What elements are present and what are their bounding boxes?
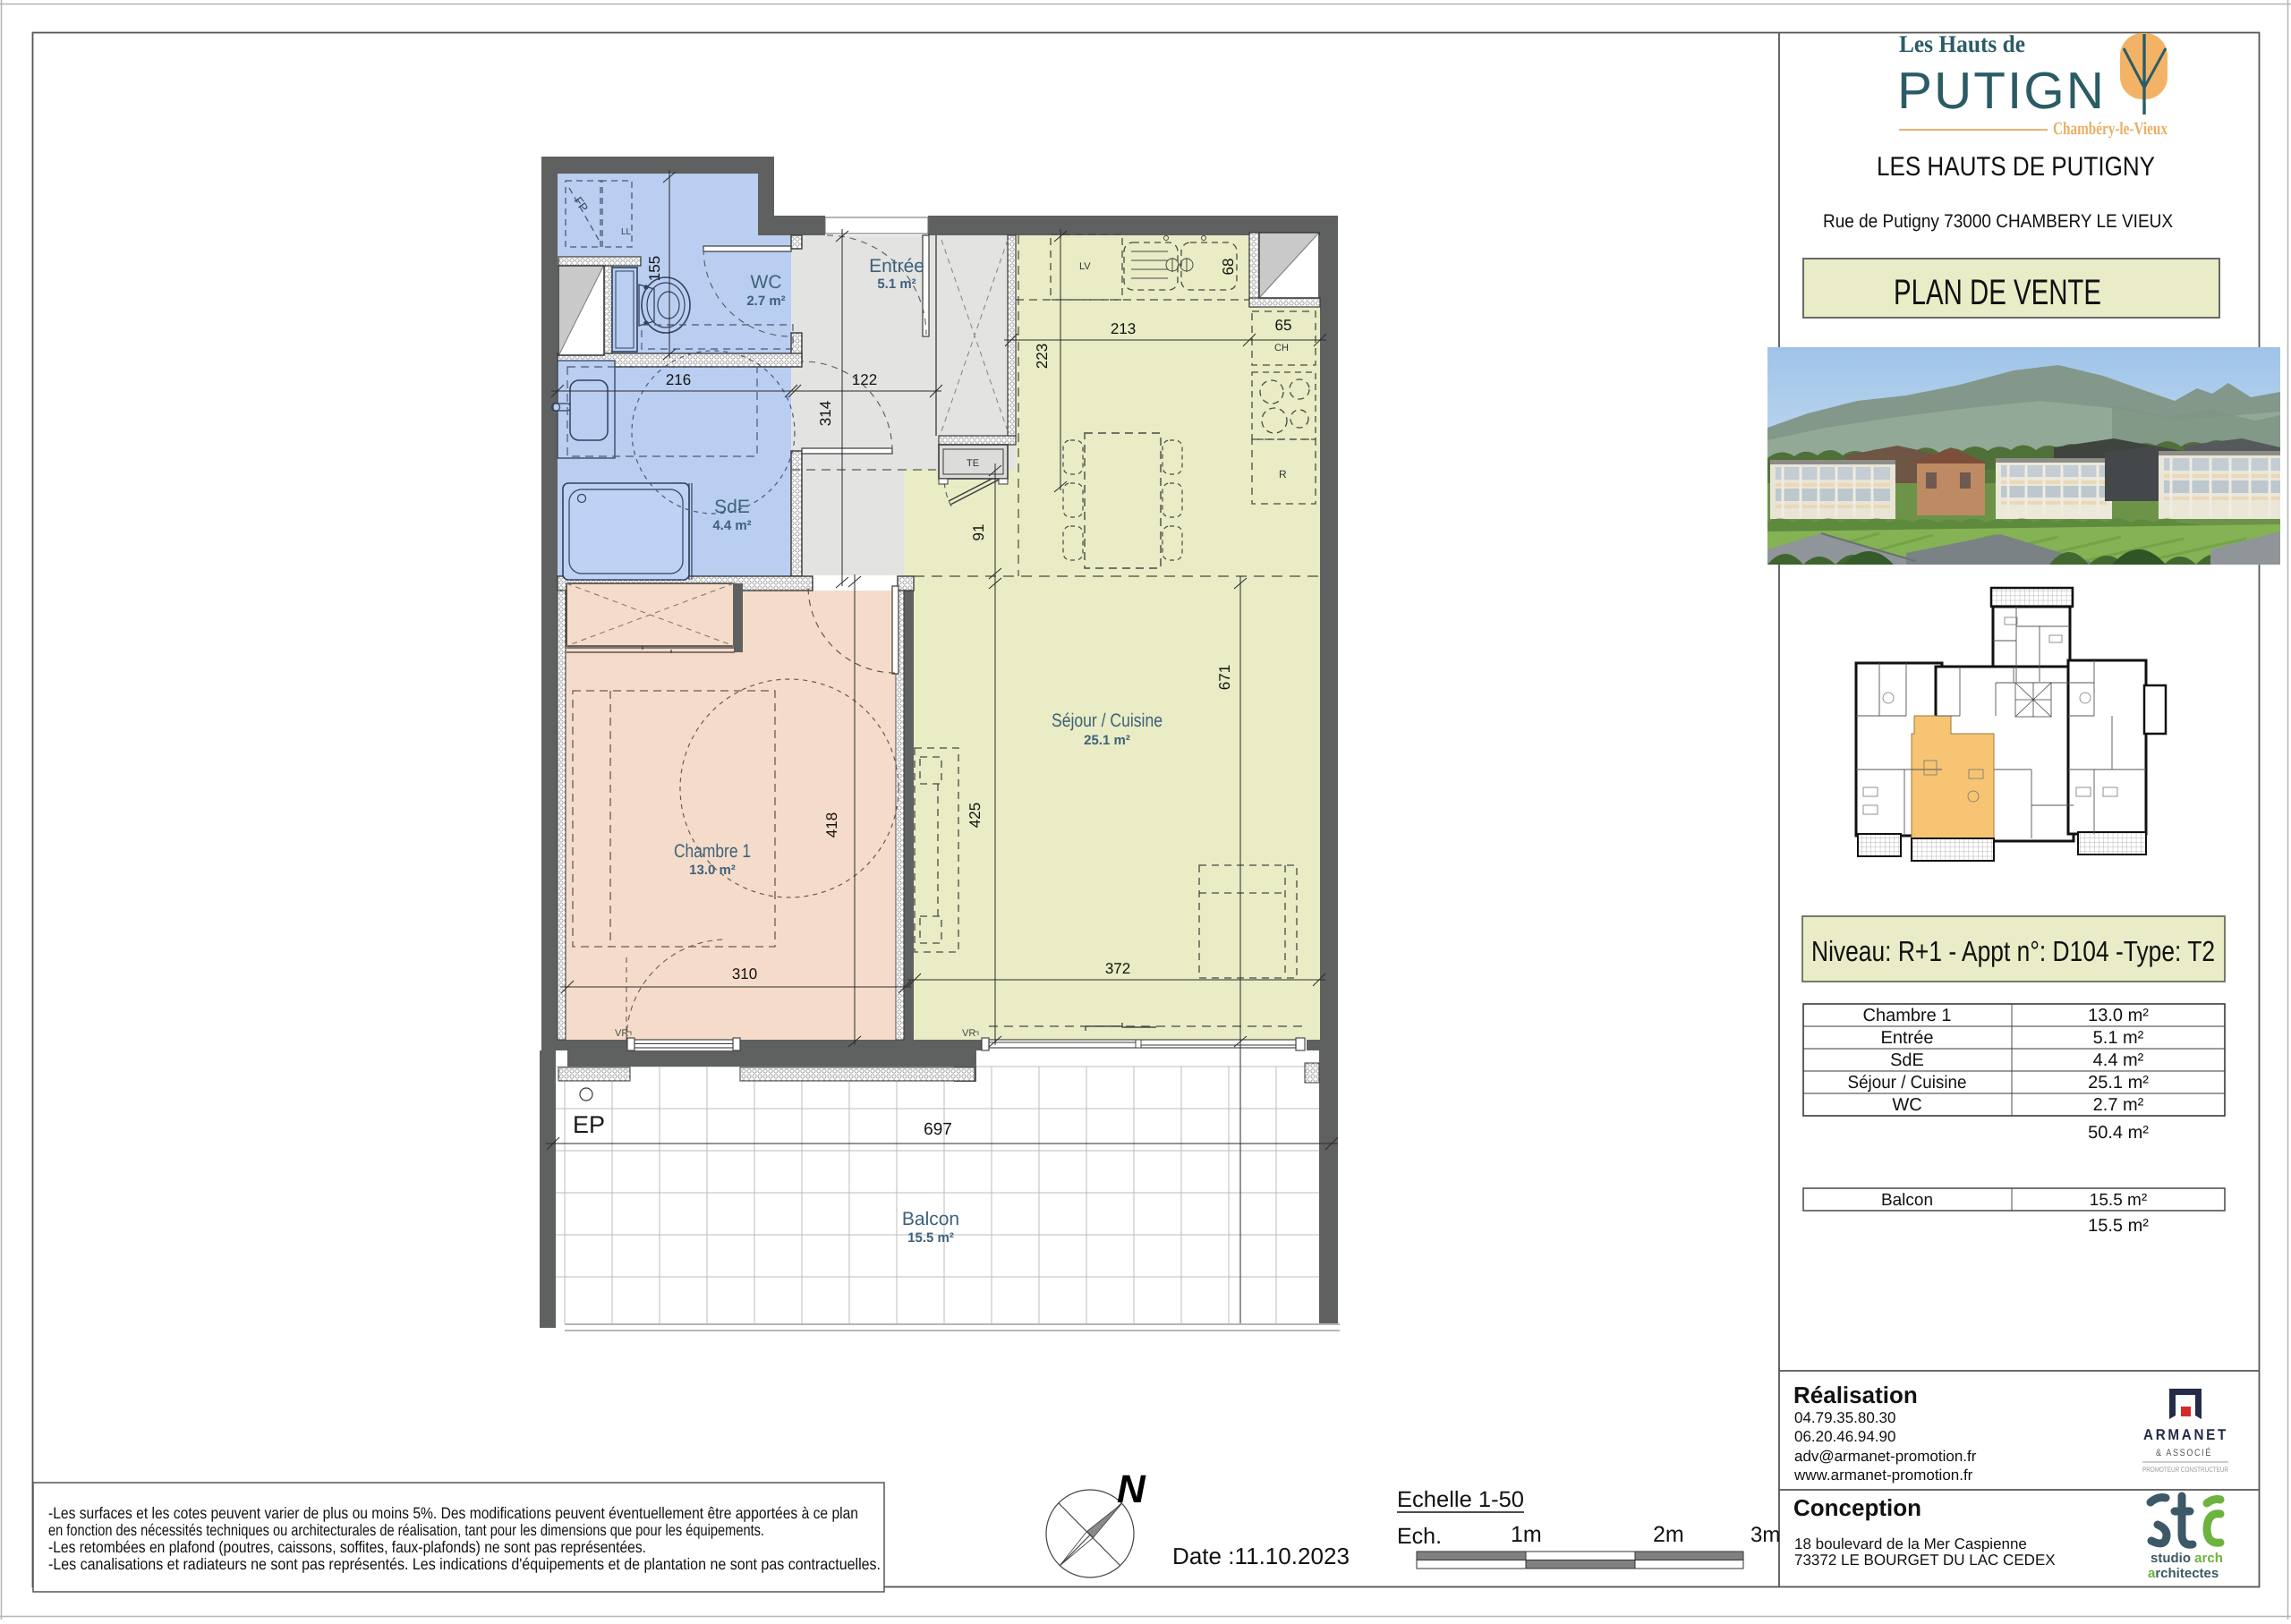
svg-text:WC: WC bbox=[751, 272, 782, 293]
svg-text:671: 671 bbox=[1216, 665, 1233, 690]
svg-text:adv@armanet-promotion.fr: adv@armanet-promotion.fr bbox=[1794, 1448, 1977, 1465]
svg-text:06.20.46.94.90: 06.20.46.94.90 bbox=[1794, 1428, 1895, 1445]
svg-text:5.1 m²: 5.1 m² bbox=[877, 276, 916, 292]
svg-text:Séjour / Cuisine: Séjour / Cuisine bbox=[1848, 1073, 1967, 1093]
svg-text:VR: VR bbox=[962, 1028, 975, 1039]
svg-text:2.7 m²: 2.7 m² bbox=[746, 293, 785, 309]
svg-text:EP: EP bbox=[573, 1111, 605, 1138]
svg-text:www.armanet-promotion.fr: www.armanet-promotion.fr bbox=[1793, 1467, 1973, 1484]
svg-text:studio arch: studio arch bbox=[2150, 1551, 2223, 1566]
svg-text:N: N bbox=[1117, 1467, 1146, 1511]
svg-text:223: 223 bbox=[1034, 344, 1051, 369]
svg-text:18 boulevard de la Mer Caspien: 18 boulevard de la Mer Caspienne bbox=[1794, 1535, 2027, 1552]
svg-text:CH: CH bbox=[1274, 343, 1289, 353]
svg-text:TE: TE bbox=[967, 458, 979, 469]
svg-text:Date :11.10.2023: Date :11.10.2023 bbox=[1172, 1543, 1350, 1569]
svg-text:155: 155 bbox=[646, 256, 663, 281]
svg-text:LV: LV bbox=[1079, 261, 1091, 272]
svg-text:PUTIGN: PUTIGN bbox=[1897, 62, 2106, 120]
svg-text:65: 65 bbox=[1275, 317, 1292, 334]
svg-text:Rue de Putigny 73000 CHAMBERY: Rue de Putigny 73000 CHAMBERY LE VIEUX bbox=[1823, 211, 2173, 232]
svg-text:25.1 m²: 25.1 m² bbox=[2088, 1073, 2149, 1093]
svg-text:Entrée: Entrée bbox=[869, 256, 924, 276]
svg-text:PROMOTEUR CONSTRUCTEUR: PROMOTEUR CONSTRUCTEUR bbox=[2142, 1466, 2228, 1474]
svg-text:Echelle 1-50: Echelle 1-50 bbox=[1397, 1487, 1524, 1512]
svg-text:WC: WC bbox=[1892, 1095, 1921, 1115]
svg-text:50.4 m²: 50.4 m² bbox=[2088, 1123, 2149, 1143]
svg-text:R: R bbox=[1279, 468, 1287, 480]
svg-text:372: 372 bbox=[1105, 960, 1130, 977]
svg-text:4.4 m²: 4.4 m² bbox=[712, 518, 751, 533]
svg-text:Conception: Conception bbox=[1793, 1494, 1921, 1521]
svg-text:122: 122 bbox=[852, 371, 877, 388]
svg-text:Chambre 1: Chambre 1 bbox=[674, 841, 751, 862]
svg-text:04.79.35.80.30: 04.79.35.80.30 bbox=[1794, 1409, 1895, 1426]
svg-text:13.0 m²: 13.0 m² bbox=[2088, 1006, 2149, 1025]
svg-text:4.4 m²: 4.4 m² bbox=[2093, 1050, 2144, 1070]
svg-text:25.1 m²: 25.1 m² bbox=[1084, 733, 1130, 748]
svg-text:& ASSOCIÉ: & ASSOCIÉ bbox=[2156, 1447, 2212, 1458]
svg-text:-Les canalisations et radiateu: -Les canalisations et radiateurs ne sont… bbox=[48, 1555, 881, 1573]
svg-text:3m: 3m bbox=[1750, 1523, 1780, 1547]
svg-text:LES HAUTS DE PUTIGNY: LES HAUTS DE PUTIGNY bbox=[1877, 152, 2155, 182]
svg-text:213: 213 bbox=[1111, 320, 1136, 337]
svg-text:68: 68 bbox=[1220, 259, 1237, 276]
svg-text:Balcon: Balcon bbox=[902, 1209, 959, 1229]
svg-text:15.5 m²: 15.5 m² bbox=[2088, 1216, 2149, 1236]
svg-text:91: 91 bbox=[970, 524, 987, 541]
svg-text:PLAN DE VENTE: PLAN DE VENTE bbox=[1894, 273, 2101, 312]
svg-text:Ech.: Ech. bbox=[1397, 1524, 1442, 1549]
svg-text:425: 425 bbox=[967, 803, 984, 828]
svg-text:13.0 m²: 13.0 m² bbox=[689, 863, 736, 878]
svg-text:1m: 1m bbox=[1511, 1522, 1542, 1547]
svg-text:Chambéry-le-Vieux: Chambéry-le-Vieux bbox=[2053, 119, 2168, 139]
svg-text:697: 697 bbox=[924, 1120, 952, 1139]
svg-text:2.7 m²: 2.7 m² bbox=[2093, 1095, 2144, 1115]
svg-text:Balcon: Balcon bbox=[1881, 1191, 1933, 1210]
svg-text:Chambre 1: Chambre 1 bbox=[1863, 1006, 1952, 1025]
svg-text:SdE: SdE bbox=[714, 497, 750, 517]
svg-text:Les Hauts de: Les Hauts de bbox=[1899, 30, 2025, 57]
svg-text:ARMANET: ARMANET bbox=[2143, 1426, 2228, 1443]
svg-text:-Les retombées en plafond (pou: -Les retombées en plafond (poutres, cais… bbox=[48, 1538, 646, 1556]
svg-text:310: 310 bbox=[732, 965, 757, 982]
svg-text:418: 418 bbox=[823, 812, 840, 838]
svg-text:15.5 m²: 15.5 m² bbox=[907, 1230, 954, 1246]
svg-text:73372 LE BOURGET DU LAC CEDEX: 73372 LE BOURGET DU LAC CEDEX bbox=[1794, 1552, 2056, 1569]
svg-text:Entrée: Entrée bbox=[1881, 1028, 1934, 1048]
svg-text:architectes: architectes bbox=[2148, 1566, 2219, 1581]
svg-text:SdE: SdE bbox=[1890, 1050, 1924, 1070]
svg-text:LL: LL bbox=[621, 227, 632, 237]
svg-text:314: 314 bbox=[817, 401, 834, 426]
svg-text:en fonction des nécessités tec: en fonction des nécessités techniques ou… bbox=[48, 1521, 764, 1539]
svg-text:216: 216 bbox=[666, 371, 691, 388]
svg-text:Niveau: R+1 - Appt n°: D104 -: Niveau: R+1 - Appt n°: D104 -Type: T2 bbox=[1811, 935, 2215, 967]
svg-text:5.1 m²: 5.1 m² bbox=[2093, 1028, 2144, 1048]
svg-text:2m: 2m bbox=[1653, 1522, 1684, 1547]
svg-text:Réalisation: Réalisation bbox=[1793, 1382, 1918, 1408]
svg-text:15.5 m²: 15.5 m² bbox=[2090, 1191, 2147, 1210]
svg-text:VR: VR bbox=[615, 1028, 628, 1039]
svg-text:Séjour / Cuisine: Séjour / Cuisine bbox=[1052, 710, 1163, 731]
svg-text:-Les surfaces et les cotes peu: -Les surfaces et les cotes peuvent varie… bbox=[48, 1504, 858, 1522]
